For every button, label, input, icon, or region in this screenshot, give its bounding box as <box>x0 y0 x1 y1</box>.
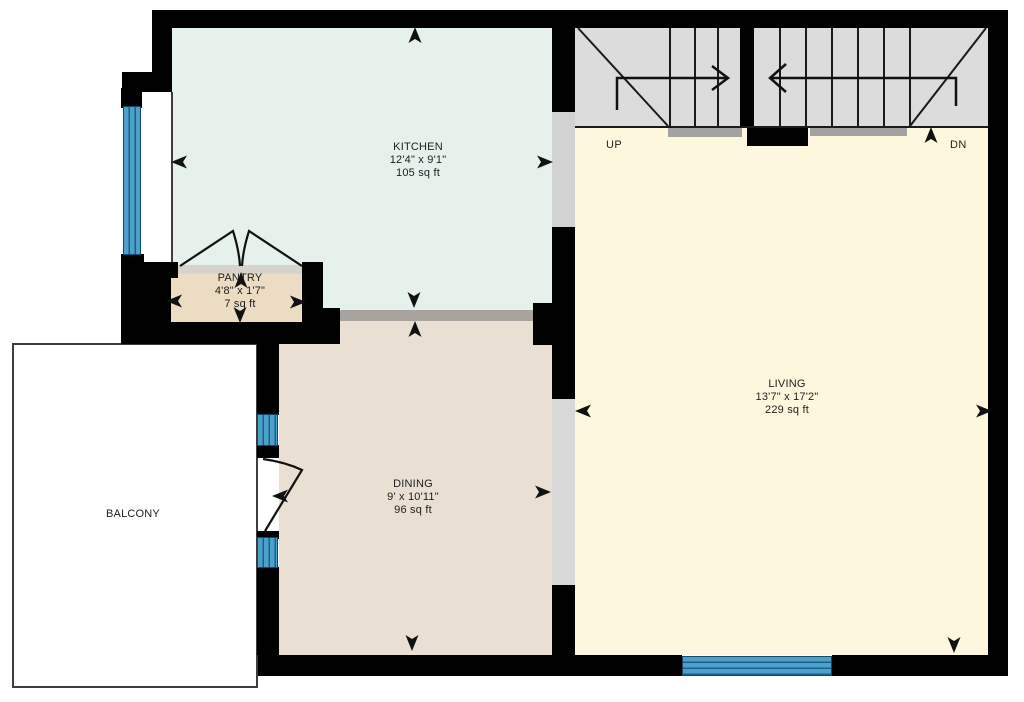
wall-right <box>988 10 1008 676</box>
stairwell <box>575 28 988 127</box>
wall-kitchen-living-lower <box>552 227 575 307</box>
pantry-area: 7 sq ft <box>165 298 315 311</box>
living-name: LIVING <box>637 378 937 391</box>
window-living-bottom <box>682 656 832 676</box>
stair-landing-strip-right <box>810 127 907 136</box>
wall-stair-divider <box>740 18 754 127</box>
wall-stair-stub <box>747 127 808 146</box>
living-label: LIVING 13'7" x 17'2" 229 sq ft <box>637 378 937 417</box>
window-kitchen-bay <box>123 106 141 255</box>
wall-kitchen-living-upper <box>552 28 575 112</box>
dining-area: 96 sq ft <box>263 504 563 517</box>
kitchen-area: 105 sq ft <box>268 167 568 180</box>
window-dining-upper <box>257 414 278 446</box>
wall-left-lower <box>121 254 144 344</box>
kitchen-bay-recess <box>141 92 173 264</box>
wall-dining-left-4 <box>257 567 279 655</box>
kitchen-name: KITCHEN <box>268 141 568 154</box>
pantry-name: PANTRY <box>165 272 315 285</box>
wall-dining-left-2 <box>257 445 279 458</box>
stairs-up-label: UP <box>606 139 622 151</box>
stairs-down-label: DN <box>950 139 967 151</box>
dining-name: DINING <box>263 478 563 491</box>
pantry-label: PANTRY 4'8" x 1'7" 7 sq ft <box>165 272 315 311</box>
stair-landing-strip-left <box>668 127 742 137</box>
opening-kitchen-dining <box>338 310 533 321</box>
wall-left-upper <box>152 10 172 74</box>
pantry-dimensions: 4'8" x 1'7" <box>165 285 315 298</box>
wall-dining-living-upper <box>552 303 575 399</box>
balcony-label: BALCONY <box>33 508 233 521</box>
kitchen-label: KITCHEN 12'4" x 9'1" 105 sq ft <box>268 141 568 180</box>
wall-top <box>152 10 1008 28</box>
wall-pantry-bottom <box>143 322 310 344</box>
dining-label: DINING 9' x 10'11" 96 sq ft <box>263 478 563 517</box>
living-dimensions: 13'7" x 17'2" <box>637 391 937 404</box>
window-dining-lower <box>257 537 278 568</box>
wall-dining-left-1 <box>257 343 279 415</box>
wall-bottom-right <box>832 655 1008 676</box>
living-area: 229 sq ft <box>637 404 937 417</box>
wall-dining-living-lower <box>552 585 575 655</box>
wall-dining-topleft <box>302 308 340 344</box>
wall-bay-above-window <box>121 88 142 108</box>
wall-bottom-left <box>258 655 682 676</box>
balcony-name: BALCONY <box>33 508 233 521</box>
floor-plan: KITCHEN 12'4" x 9'1" 105 sq ft PANTRY 4'… <box>0 0 1024 702</box>
kitchen-dimensions: 12'4" x 9'1" <box>268 154 568 167</box>
dining-dimensions: 9' x 10'11" <box>263 491 563 504</box>
